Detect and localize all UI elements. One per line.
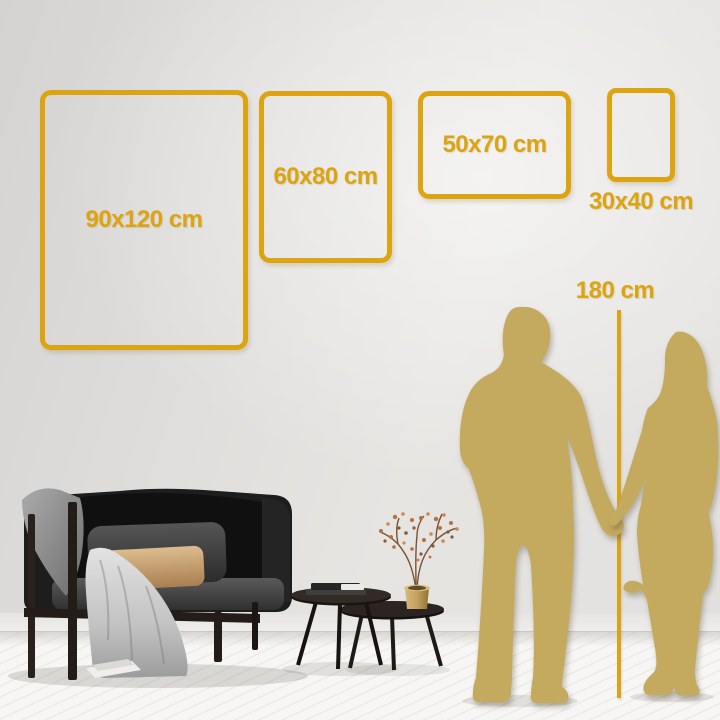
man-silhouette [460,307,624,703]
poster-size-guide-scene: 90x120 cm 60x80 cm 50x70 cm 30x40 cm 180… [0,0,720,720]
woman-silhouette [610,332,719,696]
woman-feet-shadow [630,692,714,702]
couple-silhouette [0,0,720,720]
